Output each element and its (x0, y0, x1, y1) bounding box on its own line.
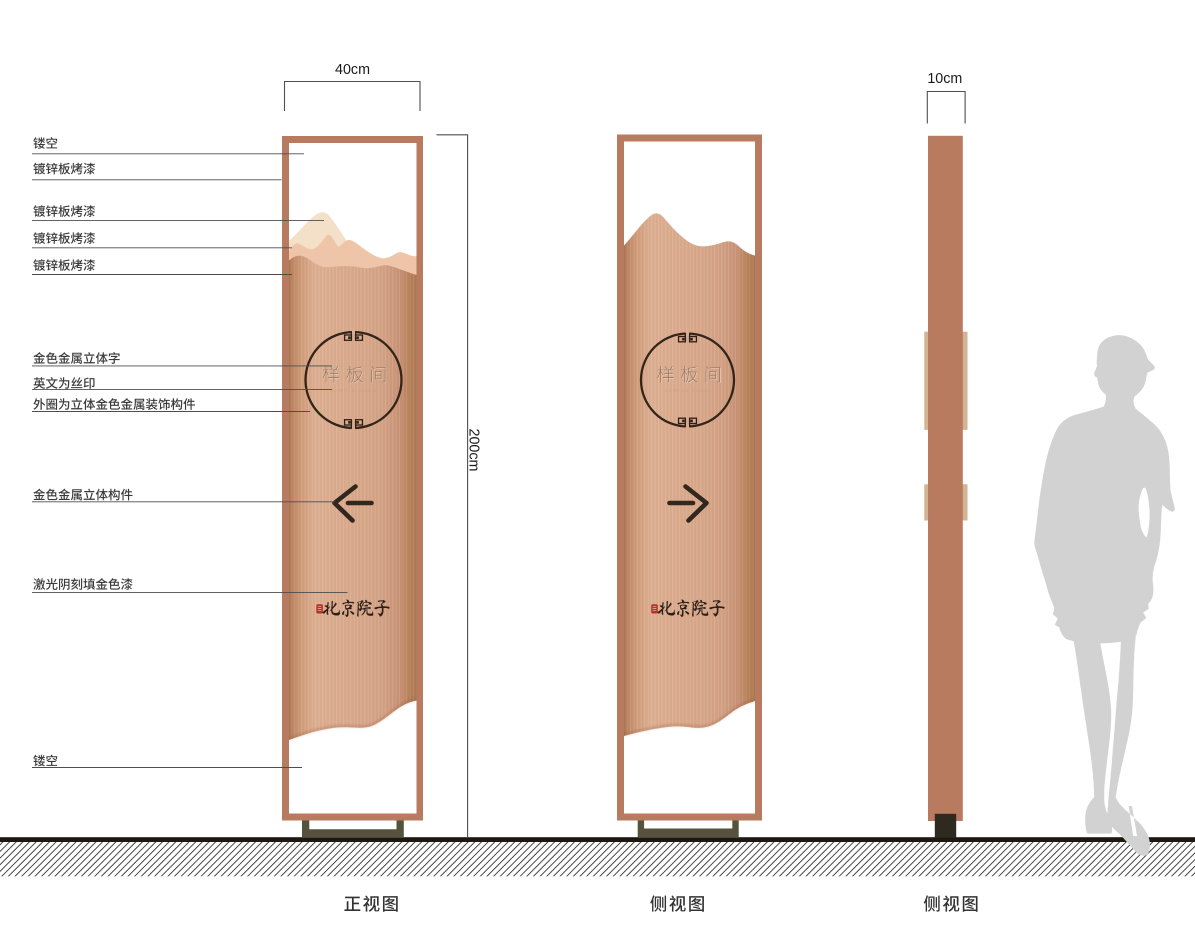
svg-text:10cm: 10cm (927, 71, 962, 87)
svg-text:SAMPLE ROOM: SAMPLE ROOM (665, 388, 711, 393)
svg-text:40cm: 40cm (335, 62, 370, 78)
svg-text:SAMPLE ROOM: SAMPLE ROOM (331, 388, 377, 393)
svg-text:200cm: 200cm (466, 429, 482, 472)
